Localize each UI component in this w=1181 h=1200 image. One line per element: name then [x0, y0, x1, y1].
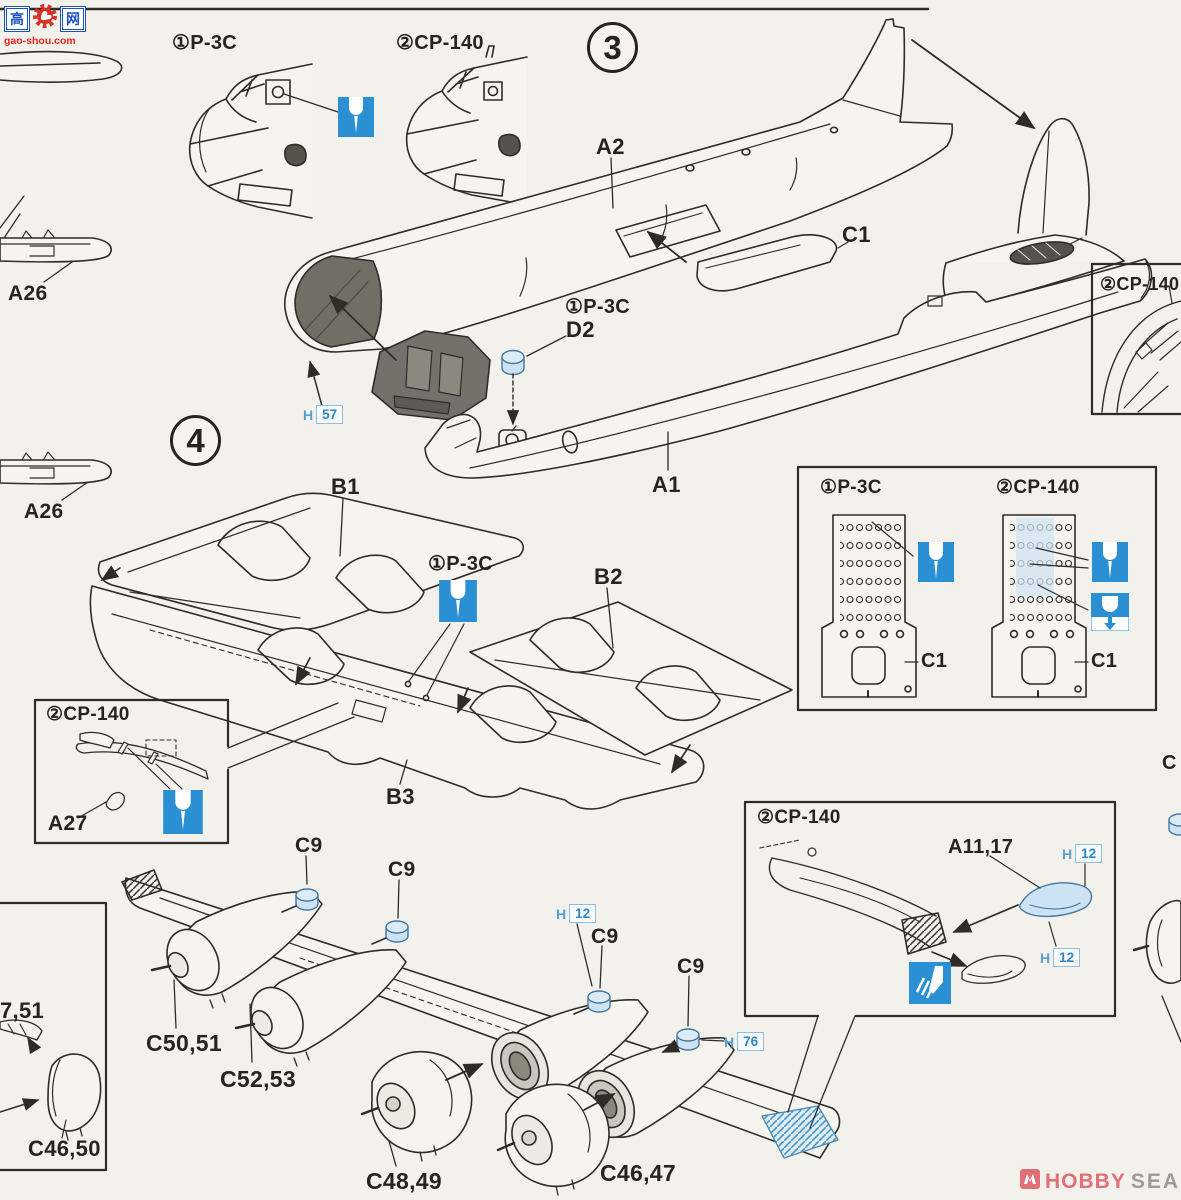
- a26-pods-drawing: [0, 230, 111, 500]
- variant-label-p3c-nose: ①P-3C: [172, 30, 237, 55]
- inset-title-wingtip: ②CP-140: [757, 806, 841, 829]
- gaoshou-char-right: 网: [60, 6, 86, 32]
- part-label-edge-fragment: C: [1162, 752, 1177, 775]
- hobbysearch-word1: HOBBY: [1045, 1170, 1126, 1194]
- hobbysearch-logo-icon: [1020, 1169, 1040, 1194]
- paint-code-h12u: 12: [1075, 844, 1102, 863]
- close-hole-icon: [1091, 593, 1129, 636]
- part-label-b1: B1: [331, 474, 360, 500]
- fuselage-upper-a2: [285, 19, 1034, 352]
- part-label-c1-left: C1: [921, 650, 947, 673]
- line-art: [0, 0, 1181, 1200]
- part-label-c1: C1: [842, 222, 871, 248]
- part-label-c46-50: C46,50: [28, 1136, 101, 1162]
- part-label-c50-51: C50,51: [146, 1030, 222, 1057]
- paint-callout-h12-upper: H 12: [1062, 844, 1102, 863]
- open-hole-icon: [1091, 542, 1129, 587]
- instruction-sheet: ①P-3C ②CP-140 3 A2 C1 ①P-3C D2 H 57 ②CP-…: [0, 0, 1181, 1200]
- stabilizer-fragment: [0, 52, 122, 244]
- hobbysearch-word2: SEARCH: [1131, 1170, 1181, 1194]
- part-label-c47-51-partial: 7,51: [0, 998, 44, 1024]
- inset-variant-cp140: ②CP-140: [996, 476, 1080, 499]
- part-label-b2: B2: [594, 564, 623, 590]
- nose-cp140-drawing: [407, 46, 527, 205]
- part-label-a26-lower: A26: [24, 500, 63, 524]
- paint-brand-h12l: H: [1040, 950, 1050, 966]
- part-label-a1: A1: [652, 472, 681, 498]
- paint-code-h12l: 12: [1053, 948, 1080, 967]
- step-4-number: 4: [186, 422, 204, 460]
- part-label-c9-4: C9: [677, 955, 704, 979]
- part-label-c9-2: C9: [388, 858, 415, 882]
- engine-cowl-c4647: [498, 1084, 614, 1195]
- part-label-c9-3: C9: [591, 925, 618, 949]
- part-label-b3: B3: [386, 784, 415, 810]
- part-label-c52-53: C52,53: [220, 1066, 296, 1093]
- paint-code-h76: 76: [737, 1032, 764, 1051]
- paint-code-h57: 57: [316, 405, 343, 424]
- paint-callout-h12-lower: H 12: [1040, 948, 1080, 967]
- open-hole-icon: [162, 790, 204, 839]
- part-label-c1-right: C1: [1091, 650, 1117, 673]
- gaoshou-char-left: 高: [4, 6, 30, 32]
- sonobuoy-inset-box: [798, 467, 1156, 710]
- nose-p3c-drawing: [190, 64, 338, 218]
- edge-fragments: [1134, 901, 1181, 1042]
- engine-cowl-c4849: [362, 1052, 482, 1161]
- open-hole-icon: [338, 97, 374, 142]
- paint-brand-h76: H: [724, 1034, 734, 1050]
- part-label-c9-1: C9: [295, 834, 322, 858]
- step-3-number: 3: [603, 29, 621, 67]
- part-label-a27: A27: [48, 812, 87, 836]
- inset-variant-p3c: ①P-3C: [820, 476, 882, 499]
- open-hole-icon: [438, 580, 478, 627]
- part-label-c46-47: C46,47: [600, 1160, 676, 1187]
- variant-label-p3c-d2: ①P-3C: [565, 294, 630, 319]
- inset-title-a27: ②CP-140: [46, 703, 130, 726]
- paint-brand-h12w: H: [556, 906, 566, 922]
- cowl-inset-box: [0, 903, 106, 1170]
- paint-code-h12w: 12: [569, 904, 596, 923]
- paint-brand-h57: H: [303, 407, 313, 423]
- gaoshou-domain-text: gao-shou.com: [4, 35, 86, 47]
- gaoshou-watermark: 高 网 gao-shou.com: [4, 3, 86, 47]
- part-label-a26-upper: A26: [8, 282, 47, 306]
- paint-callout-h76: H 76: [724, 1032, 764, 1051]
- step-3-badge: 3: [587, 22, 638, 73]
- inset-title-cockpit: ②CP-140: [1100, 274, 1179, 295]
- variant-label-p3c-wing: ①P-3C: [428, 551, 493, 576]
- part-label-c48-49: C48,49: [366, 1168, 442, 1195]
- step-4-badge: 4: [170, 415, 221, 466]
- paint-brand-h12u: H: [1062, 846, 1072, 862]
- hobbysearch-watermark: HOBBY SEARCH: [1020, 1169, 1181, 1194]
- paint-callout-h57: H 57: [303, 405, 343, 424]
- open-hole-icon: [917, 542, 955, 587]
- paint-callout-h12-wing: H 12: [556, 904, 596, 923]
- variant-label-cp140-nose: ②CP-140: [396, 30, 484, 55]
- part-label-a11-17: A11,17: [948, 836, 1013, 859]
- gaoshou-gear-icon: [32, 3, 58, 34]
- part-label-a2: A2: [596, 134, 625, 160]
- part-label-d2: D2: [566, 317, 595, 343]
- cut-knife-icon: [909, 962, 951, 1009]
